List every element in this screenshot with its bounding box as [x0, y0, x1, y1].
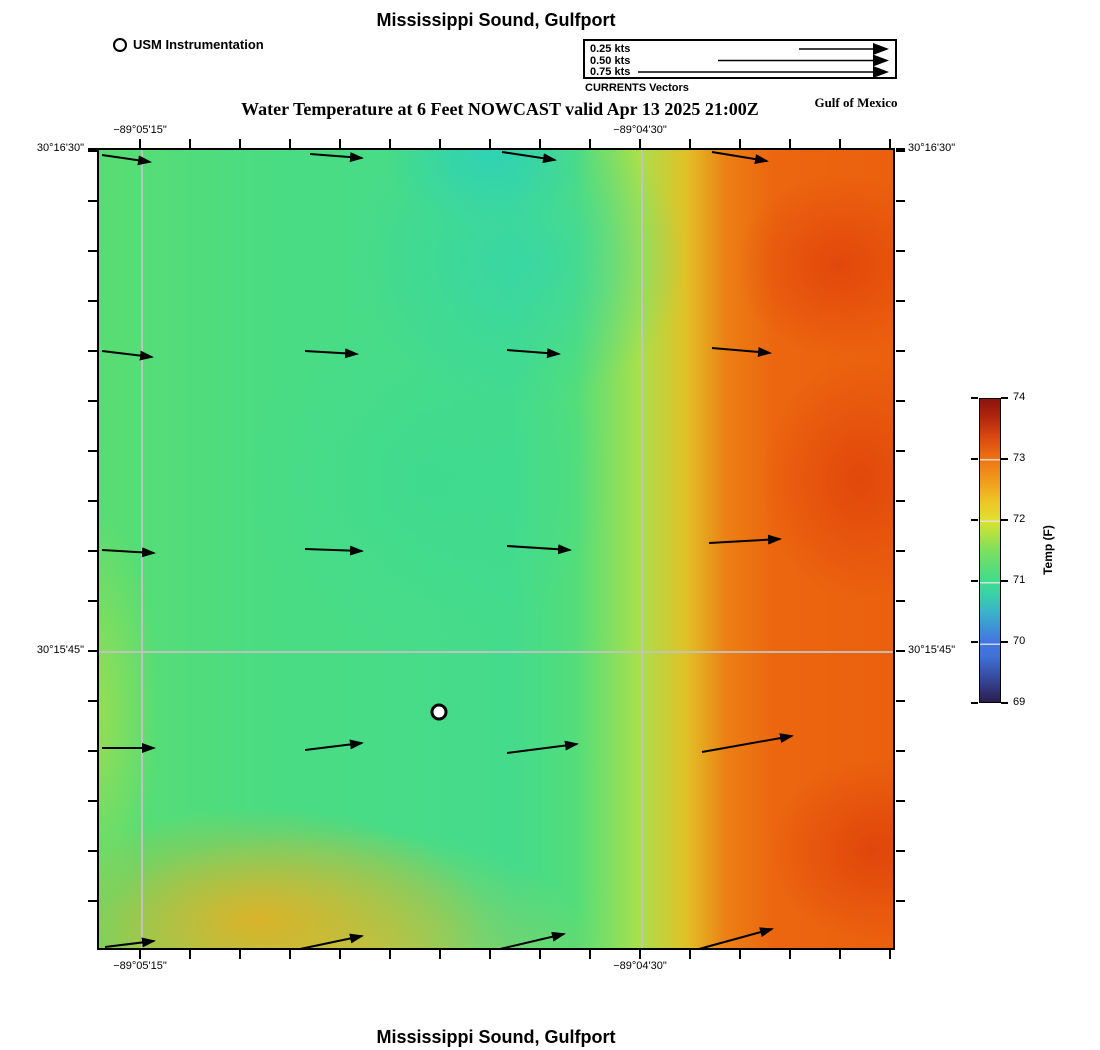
- currents-legend-title: CURRENTS Vectors: [585, 82, 689, 94]
- lat-label-left-mid: 30°15'45": [0, 644, 84, 656]
- colorbar-tick-74: 74: [1013, 391, 1025, 403]
- lon-label-top-east: −89°04'30": [580, 124, 700, 136]
- lon-label-bottom-east: −89°04'30": [580, 960, 700, 972]
- currents-legend-box: 0.25 kts 0.50 kts 0.75 kts: [583, 39, 897, 79]
- lon-label-bottom-west: −89°05'15": [80, 960, 200, 972]
- axis-ticks-right: [896, 148, 905, 950]
- current-vectors-layer: [102, 152, 792, 949]
- station-marker-icon: [113, 38, 127, 52]
- axis-ticks-top: [97, 139, 895, 148]
- temperature-map: [97, 148, 895, 950]
- lat-label-left-north: 30°16'30": [0, 142, 84, 154]
- axis-ticks-left: [88, 148, 97, 950]
- nowcast-figure: Mississippi Sound, Gulfport USM Instrume…: [0, 0, 1100, 1050]
- colorbar-tick-70: 70: [1013, 635, 1025, 647]
- station-legend-label: USM Instrumentation: [133, 37, 264, 52]
- legend-arrows-layer: [638, 49, 887, 72]
- colorbar-tick-73: 73: [1013, 452, 1025, 464]
- bottom-title: Mississippi Sound, Gulfport: [96, 1027, 896, 1048]
- current-vectors: [99, 150, 897, 952]
- station-legend: USM Instrumentation: [113, 37, 264, 52]
- colorbar-tick-71: 71: [1013, 574, 1025, 586]
- colorbar: [979, 398, 1001, 703]
- currents-legend-arrows: [585, 41, 895, 77]
- lon-label-top-west: −89°05'15": [80, 124, 200, 136]
- colorbar-ticks-right: [1001, 397, 1008, 704]
- colorbar-tick-69: 69: [1013, 696, 1025, 708]
- colorbar-title: Temp (F): [1041, 525, 1055, 575]
- colorbar-tick-72: 72: [1013, 513, 1025, 525]
- page-title: Mississippi Sound, Gulfport: [96, 10, 896, 31]
- subtitle: Water Temperature at 6 Feet NOWCAST vali…: [100, 99, 900, 120]
- colorbar-ticks-left: [971, 397, 978, 704]
- lat-label-right-north: 30°16'30": [908, 142, 998, 154]
- region-label: Gulf of Mexico: [786, 95, 926, 111]
